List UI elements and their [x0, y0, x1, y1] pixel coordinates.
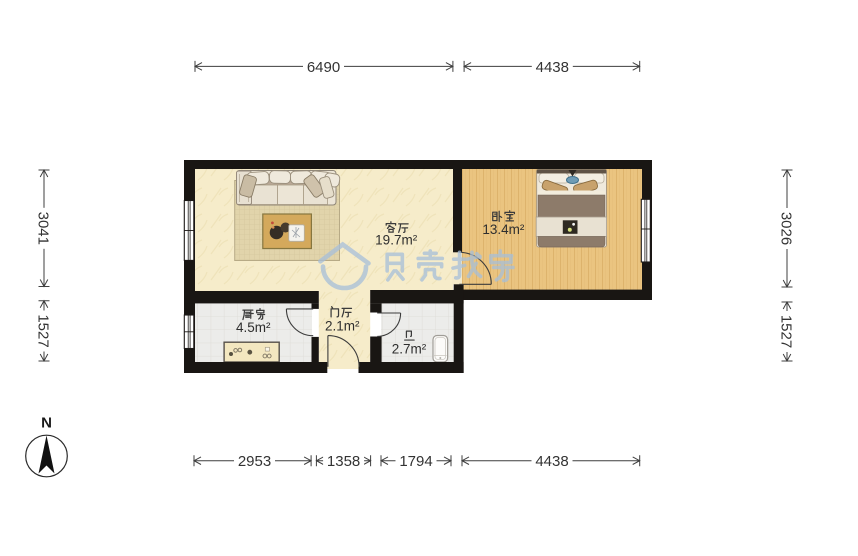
- svg-text:1527: 1527: [778, 315, 795, 348]
- svg-text:2953: 2953: [238, 453, 271, 470]
- svg-text:2.7m²: 2.7m²: [392, 342, 427, 357]
- svg-text:4438: 4438: [535, 453, 568, 470]
- svg-text:3041: 3041: [35, 212, 52, 245]
- svg-text:2.1m²: 2.1m²: [325, 319, 360, 334]
- svg-text:1358: 1358: [327, 453, 360, 470]
- svg-text:6490: 6490: [307, 59, 340, 76]
- svg-text:4438: 4438: [536, 59, 569, 76]
- svg-text:N: N: [41, 415, 52, 432]
- svg-text:19.7m²: 19.7m²: [375, 233, 418, 248]
- svg-text:4.5m²: 4.5m²: [236, 320, 271, 335]
- svg-text:1527: 1527: [35, 314, 52, 347]
- svg-text:1794: 1794: [399, 453, 432, 470]
- svg-text:13.4m²: 13.4m²: [482, 222, 525, 237]
- svg-text:3026: 3026: [778, 212, 795, 245]
